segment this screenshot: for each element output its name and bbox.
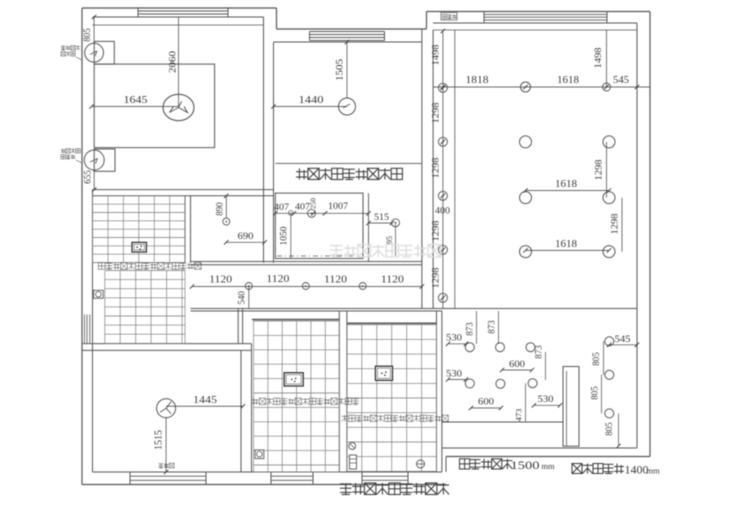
svg-text:1818: 1818 [466,75,489,86]
svg-text:1298: 1298 [432,102,442,123]
svg-text:805: 805 [604,422,614,436]
svg-text:1050: 1050 [280,226,290,245]
svg-text:890: 890 [214,202,224,216]
svg-text:1120: 1120 [381,274,404,285]
svg-text:1515: 1515 [154,430,165,450]
svg-text:545: 545 [613,75,629,86]
svg-text:1498: 1498 [432,44,442,65]
svg-text:1120: 1120 [324,274,347,285]
svg-text:2060: 2060 [169,51,179,73]
svg-text:400: 400 [435,207,450,217]
svg-text:1440: 1440 [299,95,324,106]
svg-text:655: 655 [82,170,92,184]
svg-text:1298: 1298 [432,157,442,178]
svg-text:1298: 1298 [610,213,620,234]
svg-text:mm: mm [646,466,660,476]
svg-text:1498: 1498 [594,47,604,68]
svg-text:873: 873 [487,320,497,334]
svg-text:1445: 1445 [193,395,217,406]
svg-text:1500: 1500 [511,460,540,472]
svg-text:545: 545 [615,335,631,345]
svg-text:690: 690 [238,232,254,242]
svg-text:473: 473 [514,409,524,422]
svg-text:1645: 1645 [124,95,148,106]
svg-text:1298: 1298 [432,267,442,288]
svg-text:407: 407 [274,203,289,213]
svg-text:805: 805 [591,352,601,366]
svg-text:1400: 1400 [625,465,649,477]
svg-text:mm: mm [541,461,555,471]
svg-text:1618: 1618 [555,239,577,250]
svg-text:540: 540 [237,291,247,305]
svg-text:1618: 1618 [557,75,579,86]
svg-text:1618: 1618 [555,179,577,190]
svg-text:1505: 1505 [336,59,346,81]
svg-text:530: 530 [446,369,462,379]
svg-text:1120: 1120 [209,274,232,285]
svg-text:515: 515 [374,213,389,223]
svg-text:805: 805 [82,28,92,42]
svg-text:1298: 1298 [594,159,604,180]
svg-text:250: 250 [309,198,318,209]
svg-text:530: 530 [538,395,554,405]
svg-text:1120: 1120 [266,274,289,285]
svg-text:530: 530 [446,334,462,344]
svg-text:1007: 1007 [328,202,348,212]
svg-text:600: 600 [509,360,525,370]
svg-text:600: 600 [478,398,494,408]
svg-text:873: 873 [534,345,544,359]
svg-text:95: 95 [385,236,394,244]
svg-text:873: 873 [464,322,474,336]
svg-text:1298: 1298 [432,220,442,241]
svg-text:805: 805 [590,386,600,400]
